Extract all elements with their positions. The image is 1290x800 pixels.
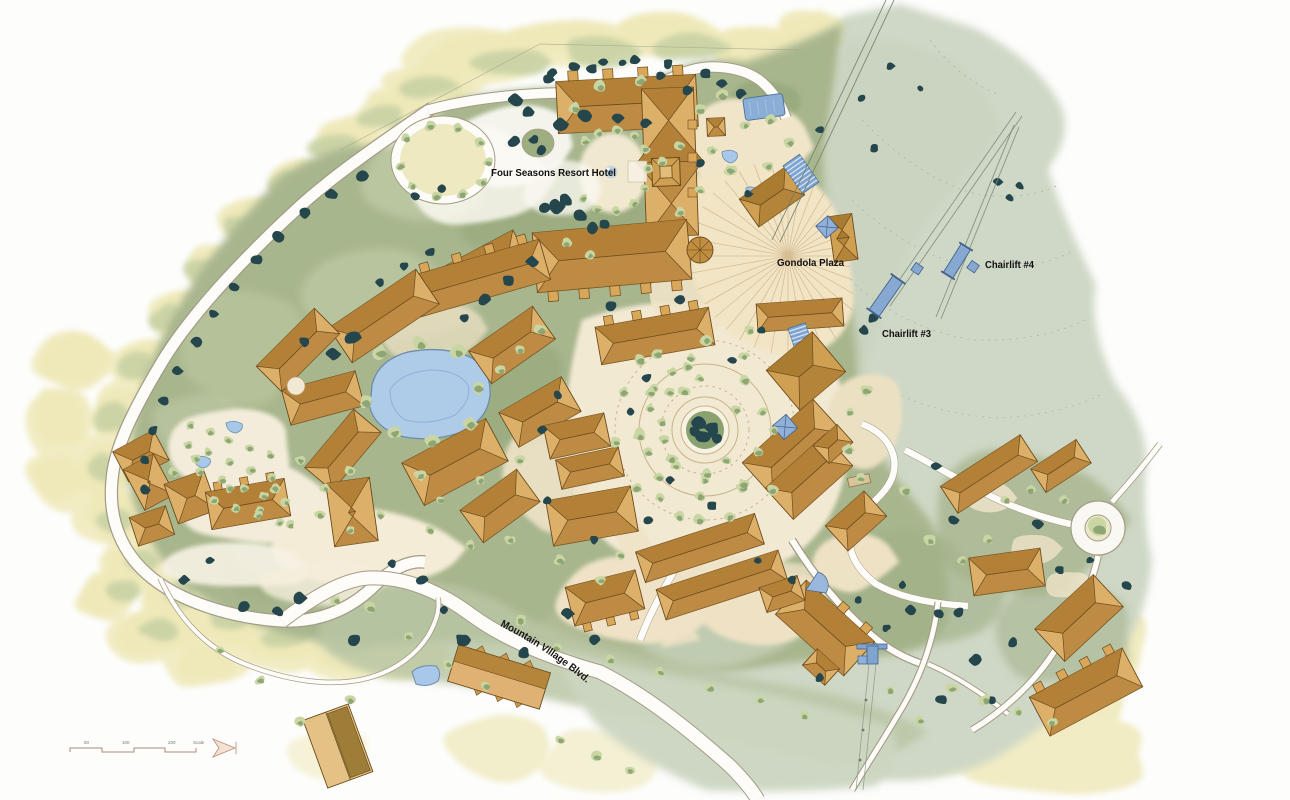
svg-text:200: 200 xyxy=(168,740,176,745)
svg-text:Scale: Scale xyxy=(193,740,205,745)
svg-text:Four Seasons Resort Hotel: Four Seasons Resort Hotel xyxy=(491,168,616,179)
svg-text:100: 100 xyxy=(122,740,130,745)
svg-text:Gondola Plaza: Gondola Plaza xyxy=(777,257,844,269)
svg-text:50: 50 xyxy=(84,740,90,745)
svg-text:Chairlift #3: Chairlift #3 xyxy=(882,329,931,340)
svg-text:Chairlift #4: Chairlift #4 xyxy=(985,260,1034,271)
